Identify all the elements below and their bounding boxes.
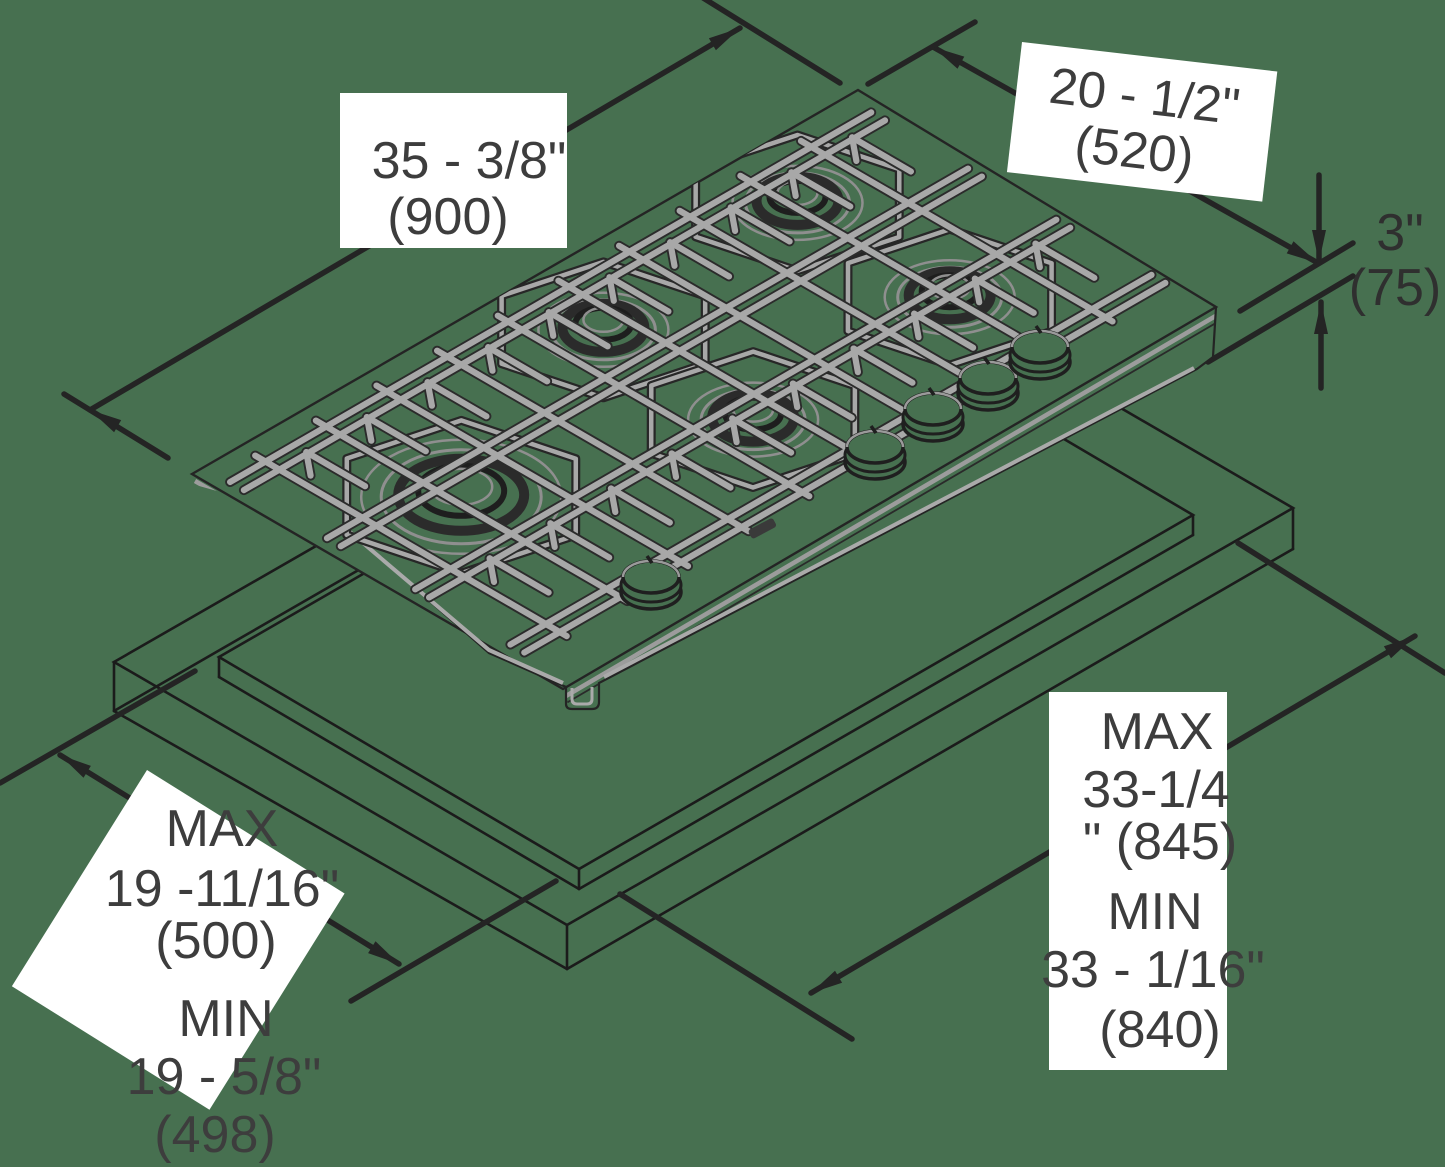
svg-text:" (845): " (845) (1083, 813, 1237, 871)
svg-text:3": 3" (1376, 204, 1423, 262)
svg-text:MIN: MIN (1107, 883, 1202, 941)
svg-text:33-1/4: 33-1/4 (1082, 761, 1229, 819)
svg-text:MAX: MAX (166, 800, 279, 858)
svg-text:19 - 5/8": 19 - 5/8" (127, 1048, 322, 1106)
svg-text:(840): (840) (1099, 1001, 1220, 1059)
svg-text:(498): (498) (154, 1106, 275, 1164)
svg-text:35 - 3/8": 35 - 3/8" (372, 132, 567, 190)
svg-text:(75): (75) (1349, 259, 1441, 317)
svg-text:19 -11/16": 19 -11/16" (105, 860, 339, 918)
svg-text:MAX: MAX (1101, 703, 1214, 761)
svg-text:(900): (900) (387, 188, 508, 246)
svg-text:(500): (500) (155, 912, 276, 970)
svg-text:MIN: MIN (178, 990, 273, 1048)
svg-text:33 - 1/16": 33 - 1/16" (1041, 941, 1265, 999)
